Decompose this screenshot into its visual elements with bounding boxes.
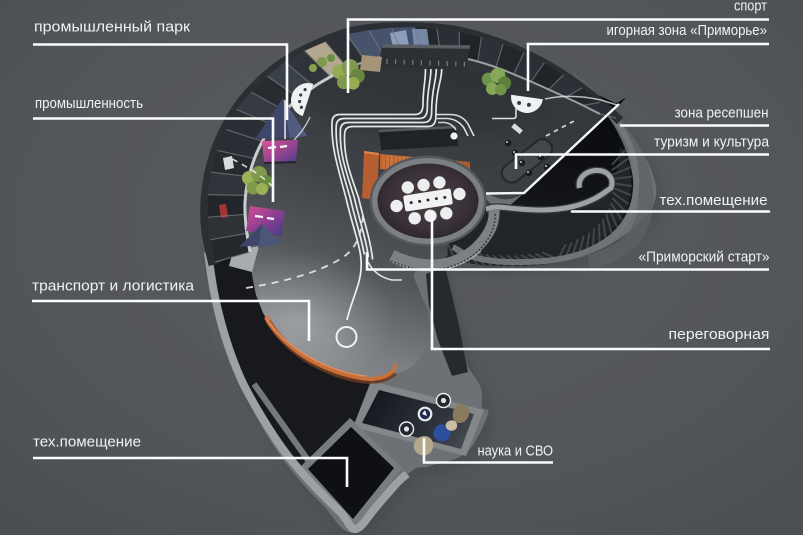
svg-text:спорт: спорт: [734, 0, 767, 15]
svg-text:зона ресепшен: зона ресепшен: [675, 105, 769, 122]
svg-text:тех.помещение: тех.помещение: [33, 434, 141, 451]
svg-text:туризм и культура: туризм и культура: [654, 134, 769, 151]
svg-text:транспорт и логистика: транспорт и логистика: [32, 278, 195, 295]
svg-text:«Приморский старт»: «Приморский старт»: [639, 249, 770, 266]
svg-text:тех.помещение: тех.помещение: [660, 192, 768, 209]
svg-text:наука и СВО: наука и СВО: [478, 442, 554, 459]
svg-text:переговорная: переговорная: [669, 326, 770, 343]
svg-text:игорная зона «Приморье»: игорная зона «Приморье»: [607, 22, 768, 39]
svg-text:промышленный парк: промышленный парк: [34, 19, 190, 36]
svg-text:промышленность: промышленность: [35, 95, 143, 112]
